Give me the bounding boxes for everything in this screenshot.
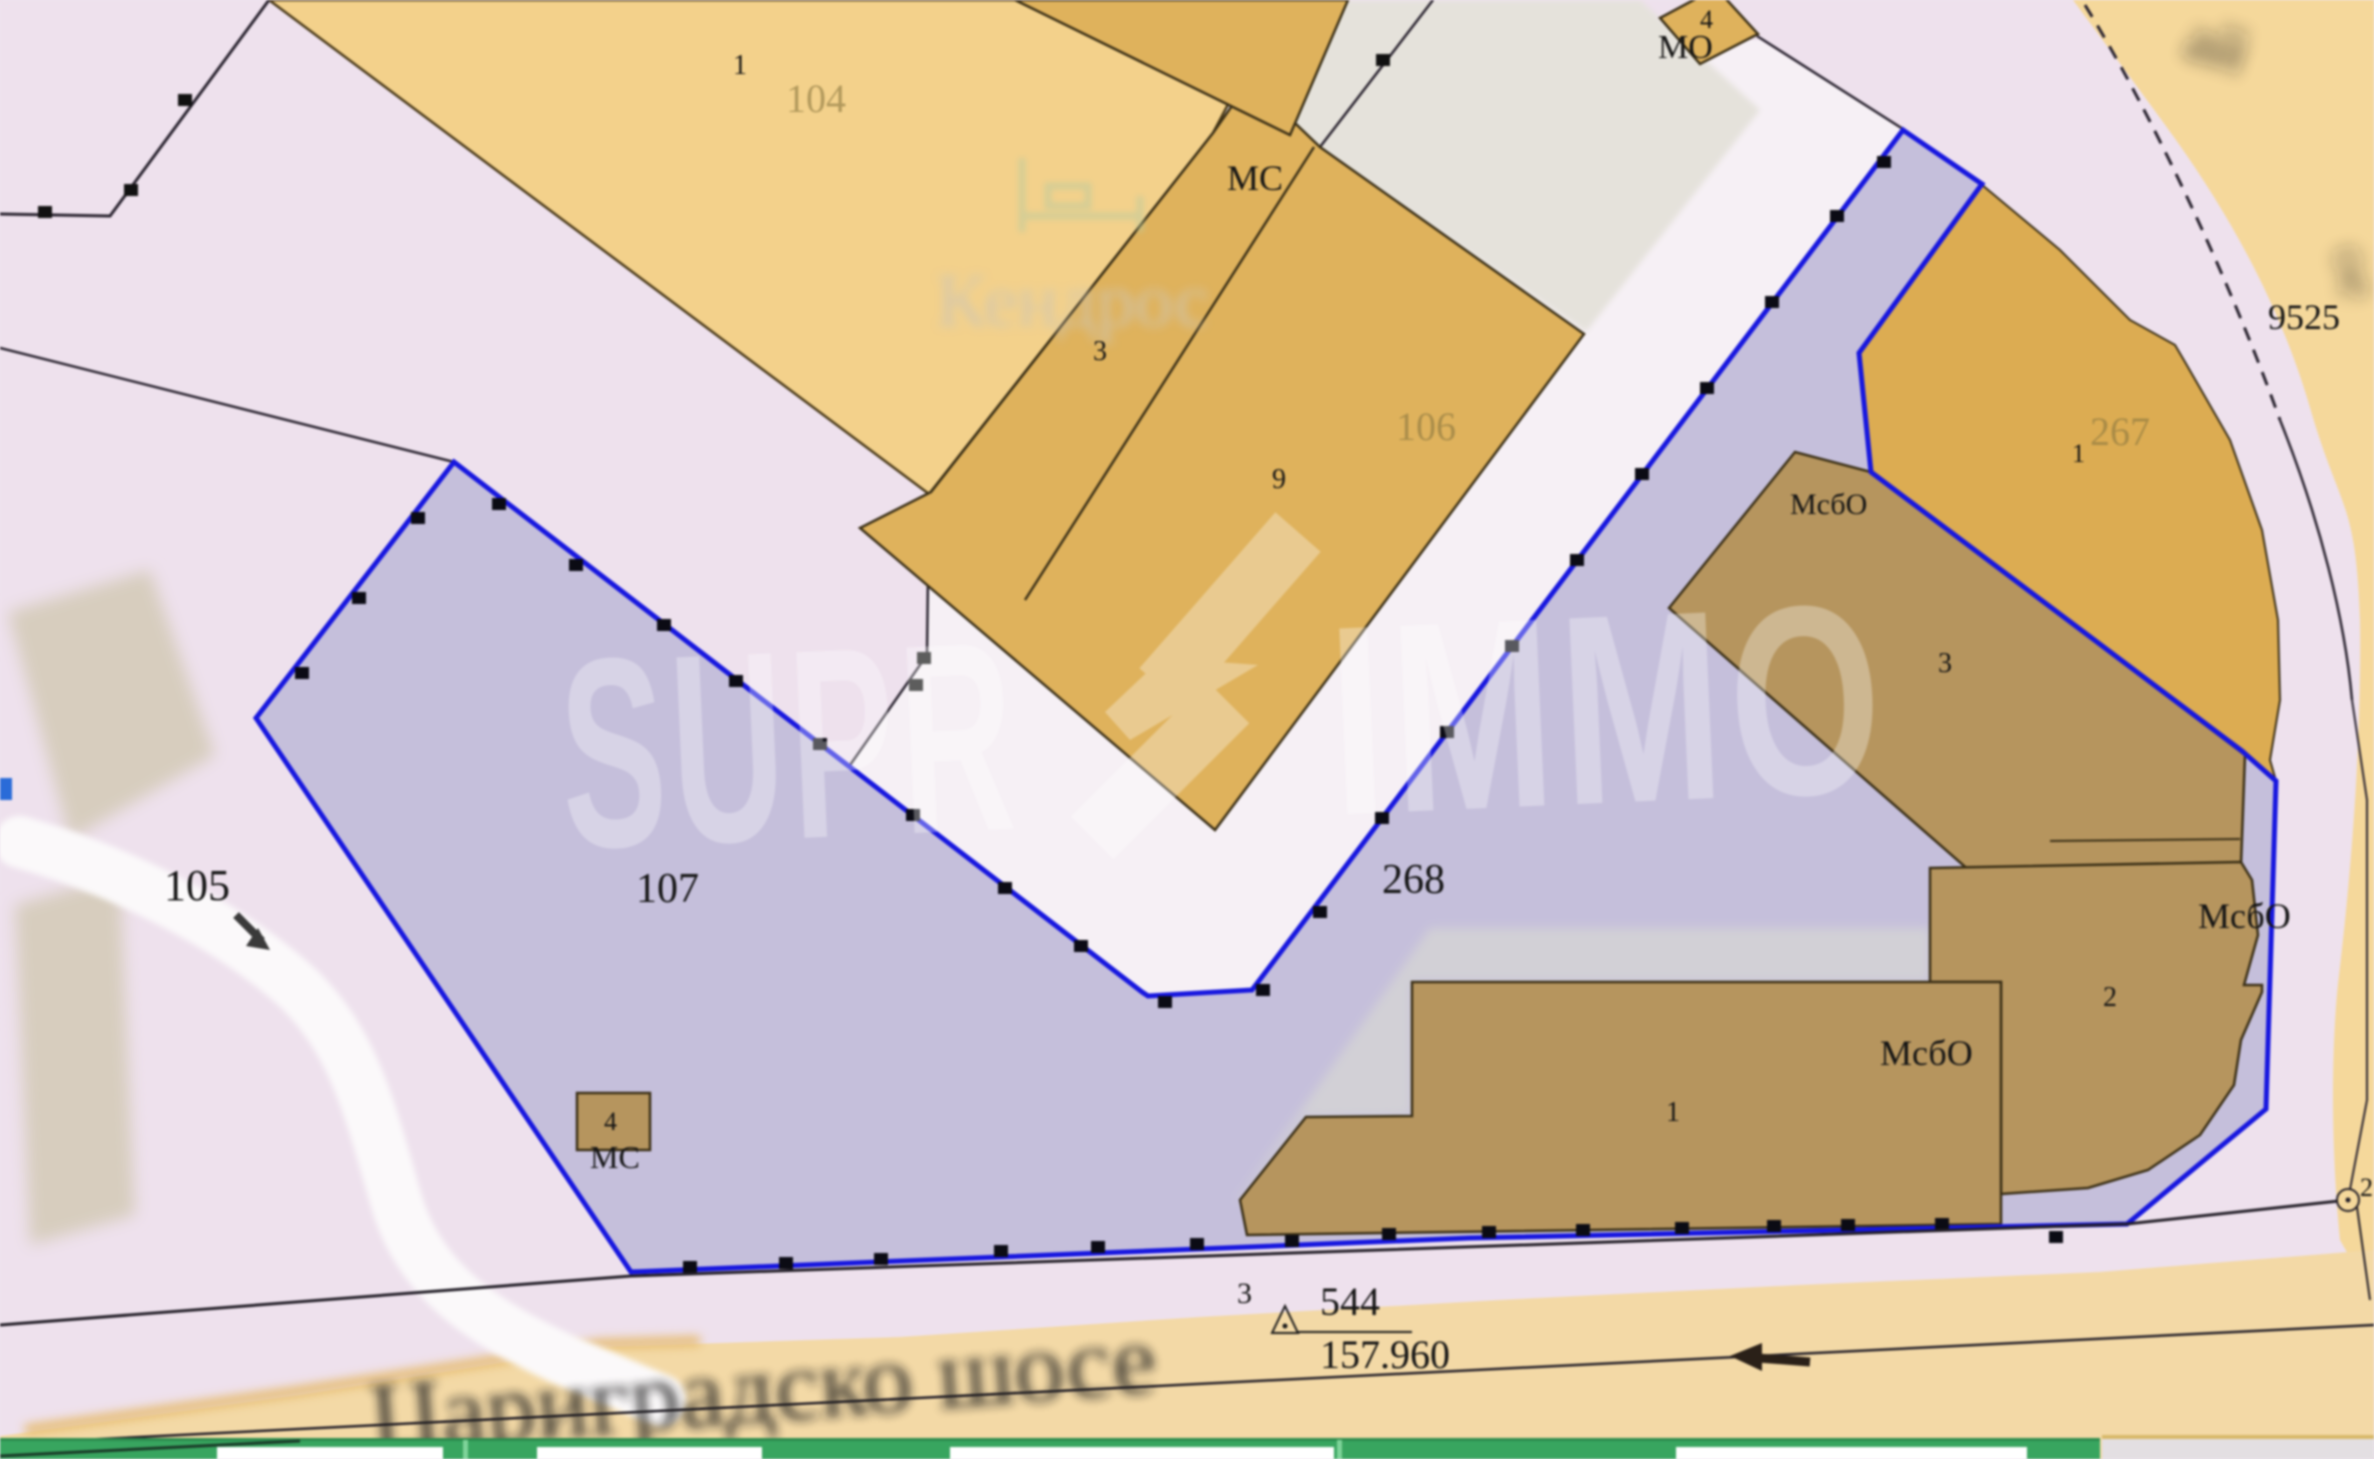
svg-text:105: 105 — [164, 861, 230, 910]
svg-text:544: 544 — [1320, 1279, 1380, 1324]
svg-text:9525: 9525 — [2268, 297, 2340, 337]
svg-text:МсбО: МсбО — [1880, 1033, 1973, 1073]
svg-text:9: 9 — [1272, 464, 1286, 495]
svg-text:МсбО: МсбО — [2198, 896, 2291, 936]
svg-text:157.960: 157.960 — [1320, 1332, 1450, 1377]
svg-text:2: 2 — [2103, 982, 2117, 1013]
svg-text:106: 106 — [1396, 404, 1456, 449]
svg-text:3: 3 — [1237, 1277, 1252, 1310]
svg-text:SUPR: SUPR — [554, 584, 1025, 906]
svg-text:IMMO: IMMO — [1324, 546, 1895, 872]
svg-text:2: 2 — [2360, 1173, 2373, 1202]
svg-text:4: 4 — [604, 1107, 617, 1136]
svg-text:МС: МС — [1227, 158, 1283, 198]
svg-text:1: 1 — [733, 50, 747, 81]
svg-text:МО: МО — [1658, 29, 1713, 66]
svg-text:1: 1 — [1666, 1097, 1680, 1128]
svg-text:Кендрос: Кендрос — [936, 259, 1209, 343]
svg-text:3: 3 — [1093, 336, 1107, 367]
svg-text:267: 267 — [2090, 409, 2150, 454]
svg-text:МС: МС — [590, 1139, 640, 1175]
svg-text:3: 3 — [1938, 648, 1952, 679]
svg-text:МсбО: МсбО — [1790, 488, 1867, 521]
svg-text:1: 1 — [2072, 439, 2085, 468]
svg-text:104: 104 — [786, 76, 846, 121]
